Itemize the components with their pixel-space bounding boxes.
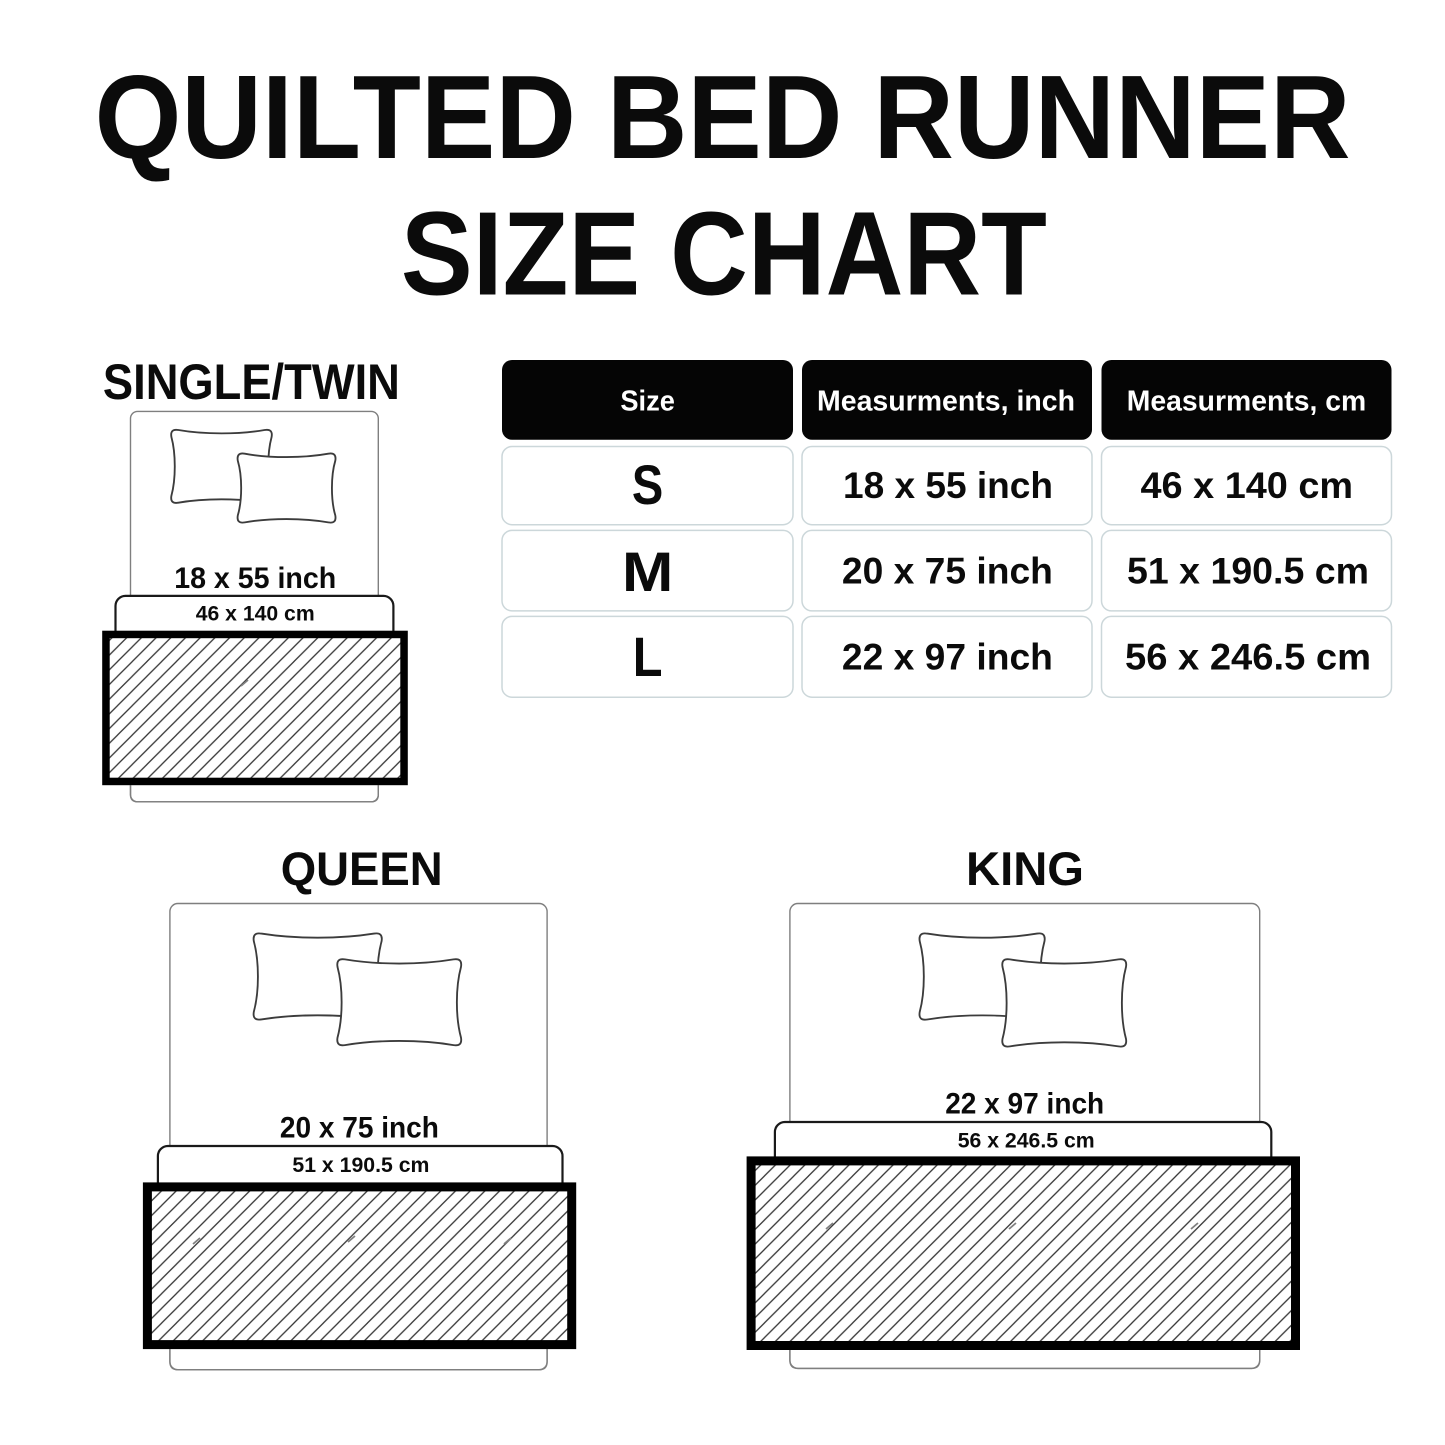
svg-text:SINGLE/TWIN: SINGLE/TWIN (103, 354, 400, 410)
svg-text:QUILTED BED RUNNER: QUILTED BED RUNNER (95, 51, 1351, 184)
svg-text:18 x 55 inch: 18 x 55 inch (843, 465, 1053, 506)
svg-text:Measurments, cm: Measurments, cm (1127, 385, 1367, 417)
svg-text:18 x 55 inch: 18 x 55 inch (174, 562, 336, 595)
svg-text:L: L (633, 626, 663, 689)
svg-text:22 x 97 inch: 22 x 97 inch (945, 1088, 1104, 1121)
svg-text:46 x 140 cm: 46 x 140 cm (196, 602, 315, 626)
svg-text:51 x 190.5 cm: 51 x 190.5 cm (1127, 550, 1369, 591)
svg-text:QUEEN: QUEEN (281, 842, 443, 895)
svg-text:20 x 75 inch: 20 x 75 inch (280, 1111, 439, 1144)
svg-text:M: M (622, 542, 673, 604)
svg-text:Measurments, inch: Measurments, inch (817, 385, 1075, 417)
svg-text:20 x 75 inch: 20 x 75 inch (842, 550, 1053, 591)
svg-text:56 x 246.5 cm: 56 x 246.5 cm (1125, 637, 1371, 678)
svg-text:S: S (632, 453, 663, 516)
svg-text:46 x 140 cm: 46 x 140 cm (1141, 465, 1354, 506)
svg-text:Size: Size (620, 385, 675, 417)
svg-text:KING: KING (966, 842, 1084, 895)
svg-text:51 x 190.5 cm: 51 x 190.5 cm (292, 1153, 429, 1177)
svg-text:SIZE CHART: SIZE CHART (401, 188, 1047, 321)
svg-text:22 x 97 inch: 22 x 97 inch (842, 637, 1053, 678)
svg-text:56 x 246.5 cm: 56 x 246.5 cm (958, 1128, 1095, 1152)
